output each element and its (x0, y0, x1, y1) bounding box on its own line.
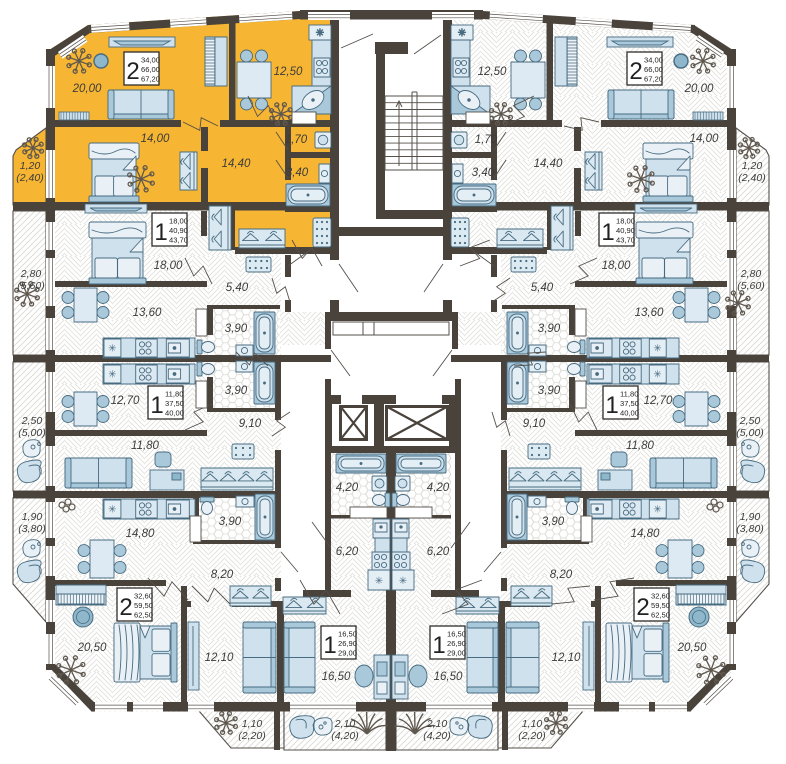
svg-text:3,40: 3,40 (472, 167, 495, 179)
svg-text:6,20: 6,20 (336, 546, 359, 558)
svg-text:59,50: 59,50 (134, 601, 153, 610)
svg-text:1,20: 1,20 (742, 160, 763, 172)
svg-text:11,80: 11,80 (620, 390, 638, 399)
svg-text:14,40: 14,40 (222, 158, 251, 170)
svg-text:29,00: 29,00 (338, 649, 357, 658)
svg-text:16,50: 16,50 (338, 630, 357, 639)
svg-text:(3,80): (3,80) (736, 523, 763, 535)
svg-text:2: 2 (629, 58, 642, 85)
svg-text:18,00: 18,00 (602, 260, 631, 272)
svg-text:✳: ✳ (108, 505, 116, 516)
svg-text:8,20: 8,20 (211, 569, 234, 581)
svg-text:(5,00): (5,00) (736, 427, 763, 439)
svg-text:67,20: 67,20 (644, 75, 663, 84)
svg-text:14,40: 14,40 (534, 158, 563, 170)
svg-text:✳: ✳ (653, 505, 661, 516)
svg-text:1,70: 1,70 (285, 134, 308, 146)
svg-text:2: 2 (636, 594, 649, 621)
svg-text:(5,00): (5,00) (18, 427, 45, 439)
svg-text:8,20: 8,20 (550, 569, 573, 581)
svg-text:14,80: 14,80 (126, 528, 155, 540)
svg-text:1,90: 1,90 (22, 511, 43, 523)
svg-text:(5,60): (5,60) (17, 280, 44, 292)
svg-text:3,90: 3,90 (225, 385, 248, 397)
svg-text:16,50: 16,50 (447, 630, 466, 639)
svg-text:16,50: 16,50 (322, 671, 351, 683)
svg-text:12,50: 12,50 (274, 66, 303, 78)
svg-text:1: 1 (601, 219, 614, 246)
svg-text:11,80: 11,80 (165, 390, 183, 399)
svg-text:13,60: 13,60 (635, 307, 664, 319)
svg-text:1: 1 (605, 392, 618, 419)
svg-text:12,50: 12,50 (478, 66, 507, 78)
svg-text:✳: ✳ (399, 576, 407, 587)
svg-text:66,00: 66,00 (141, 65, 160, 74)
svg-text:(5,60): (5,60) (737, 280, 764, 292)
svg-text:4,20: 4,20 (336, 482, 359, 494)
svg-text:✳: ✳ (653, 344, 661, 355)
svg-text:20,50: 20,50 (77, 642, 107, 654)
svg-text:1,70: 1,70 (475, 134, 498, 146)
svg-text:✳: ✳ (458, 28, 466, 39)
svg-text:18,00: 18,00 (616, 217, 635, 226)
svg-text:34,00: 34,00 (644, 56, 663, 65)
svg-text:20,00: 20,00 (72, 83, 102, 95)
svg-text:13,60: 13,60 (133, 307, 162, 319)
svg-text:9,10: 9,10 (523, 418, 546, 430)
svg-text:1: 1 (323, 632, 336, 659)
svg-text:✳: ✳ (108, 370, 116, 381)
svg-text:3,90: 3,90 (219, 516, 242, 528)
svg-text:2,10: 2,10 (426, 718, 448, 730)
svg-text:16,50: 16,50 (434, 671, 463, 683)
svg-text:6,20: 6,20 (427, 546, 450, 558)
svg-text:12,70: 12,70 (111, 395, 140, 407)
svg-text:20,50: 20,50 (677, 642, 707, 654)
svg-text:5,40: 5,40 (531, 282, 554, 294)
svg-text:(4,20): (4,20) (331, 730, 358, 742)
svg-text:40,00: 40,00 (165, 409, 184, 418)
svg-text:12,10: 12,10 (552, 652, 581, 664)
svg-text:(2,40): (2,40) (16, 172, 43, 184)
svg-text:34,00: 34,00 (141, 56, 160, 65)
svg-text:62,50: 62,50 (134, 611, 153, 620)
svg-text:32,60: 32,60 (651, 592, 670, 601)
svg-text:2: 2 (126, 58, 139, 85)
svg-text:62,50: 62,50 (651, 611, 670, 620)
svg-text:(2,20): (2,20) (238, 730, 265, 742)
svg-text:5,40: 5,40 (226, 282, 249, 294)
svg-text:3,40: 3,40 (286, 167, 309, 179)
svg-text:14,00: 14,00 (690, 133, 719, 145)
svg-text:43,70: 43,70 (616, 236, 635, 245)
svg-text:12,70: 12,70 (644, 395, 673, 407)
svg-text:29,00: 29,00 (447, 649, 466, 658)
svg-text:✳: ✳ (108, 344, 116, 355)
svg-text:(3,80): (3,80) (18, 523, 45, 535)
svg-text:1: 1 (432, 632, 445, 659)
svg-text:1,10: 1,10 (522, 718, 543, 730)
svg-text:1: 1 (154, 219, 167, 246)
svg-text:2,50: 2,50 (21, 415, 43, 427)
svg-text:67,20: 67,20 (141, 75, 160, 84)
svg-text:1,10: 1,10 (242, 718, 263, 730)
svg-text:1: 1 (150, 392, 163, 419)
svg-text:59,50: 59,50 (651, 601, 670, 610)
svg-text:2,80: 2,80 (740, 268, 762, 280)
svg-text:1,20: 1,20 (20, 160, 41, 172)
svg-text:26,90: 26,90 (338, 639, 357, 648)
svg-text:3,90: 3,90 (225, 323, 248, 335)
svg-text:32,60: 32,60 (134, 592, 153, 601)
svg-text:43,70: 43,70 (169, 236, 188, 245)
svg-text:18,00: 18,00 (154, 260, 183, 272)
svg-text:14,80: 14,80 (631, 528, 660, 540)
svg-text:2,80: 2,80 (20, 268, 42, 280)
svg-text:✳: ✳ (316, 28, 324, 39)
svg-text:4,20: 4,20 (427, 482, 450, 494)
svg-text:3,90: 3,90 (542, 516, 565, 528)
svg-text:2: 2 (119, 594, 132, 621)
svg-text:1,90: 1,90 (740, 511, 761, 523)
svg-text:✳: ✳ (653, 370, 661, 381)
svg-text:40,00: 40,00 (620, 409, 639, 418)
svg-text:26,90: 26,90 (447, 639, 466, 648)
svg-text:18,00: 18,00 (169, 217, 188, 226)
svg-text:40,90: 40,90 (616, 226, 635, 235)
svg-text:9,10: 9,10 (239, 418, 262, 430)
svg-text:2,10: 2,10 (334, 718, 356, 730)
svg-text:37,50: 37,50 (620, 399, 639, 408)
svg-text:37,50: 37,50 (165, 399, 184, 408)
svg-text:11,80: 11,80 (626, 440, 655, 452)
svg-text:(2,20): (2,20) (518, 730, 545, 742)
svg-text:40,90: 40,90 (169, 226, 188, 235)
svg-text:(4,20): (4,20) (423, 730, 450, 742)
svg-text:(2,40): (2,40) (738, 172, 765, 184)
svg-text:3,90: 3,90 (538, 323, 561, 335)
svg-text:3,90: 3,90 (538, 385, 561, 397)
svg-text:12,10: 12,10 (205, 652, 234, 664)
svg-text:11,80: 11,80 (131, 440, 160, 452)
svg-text:20,00: 20,00 (684, 83, 714, 95)
svg-text:2,50: 2,50 (739, 415, 761, 427)
svg-text:✳: ✳ (375, 576, 383, 587)
svg-text:66,00: 66,00 (644, 65, 663, 74)
svg-text:14,00: 14,00 (141, 133, 170, 145)
